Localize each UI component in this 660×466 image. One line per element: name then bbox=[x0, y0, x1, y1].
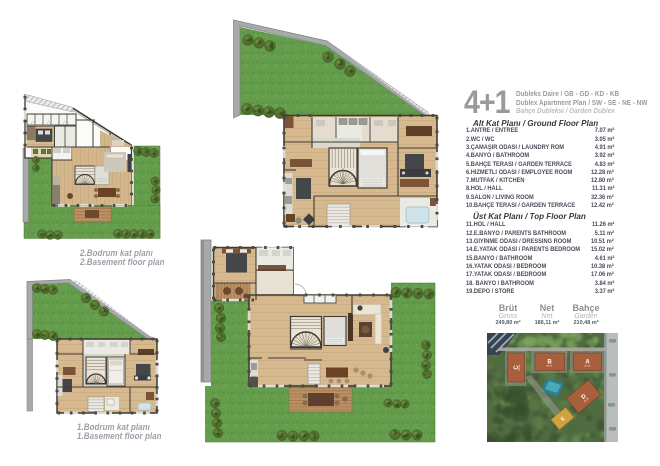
svg-text:BLOK: BLOK bbox=[585, 366, 591, 368]
svg-text:BLOK: BLOK bbox=[547, 366, 553, 368]
svg-text:BLOK: BLOK bbox=[519, 364, 521, 370]
